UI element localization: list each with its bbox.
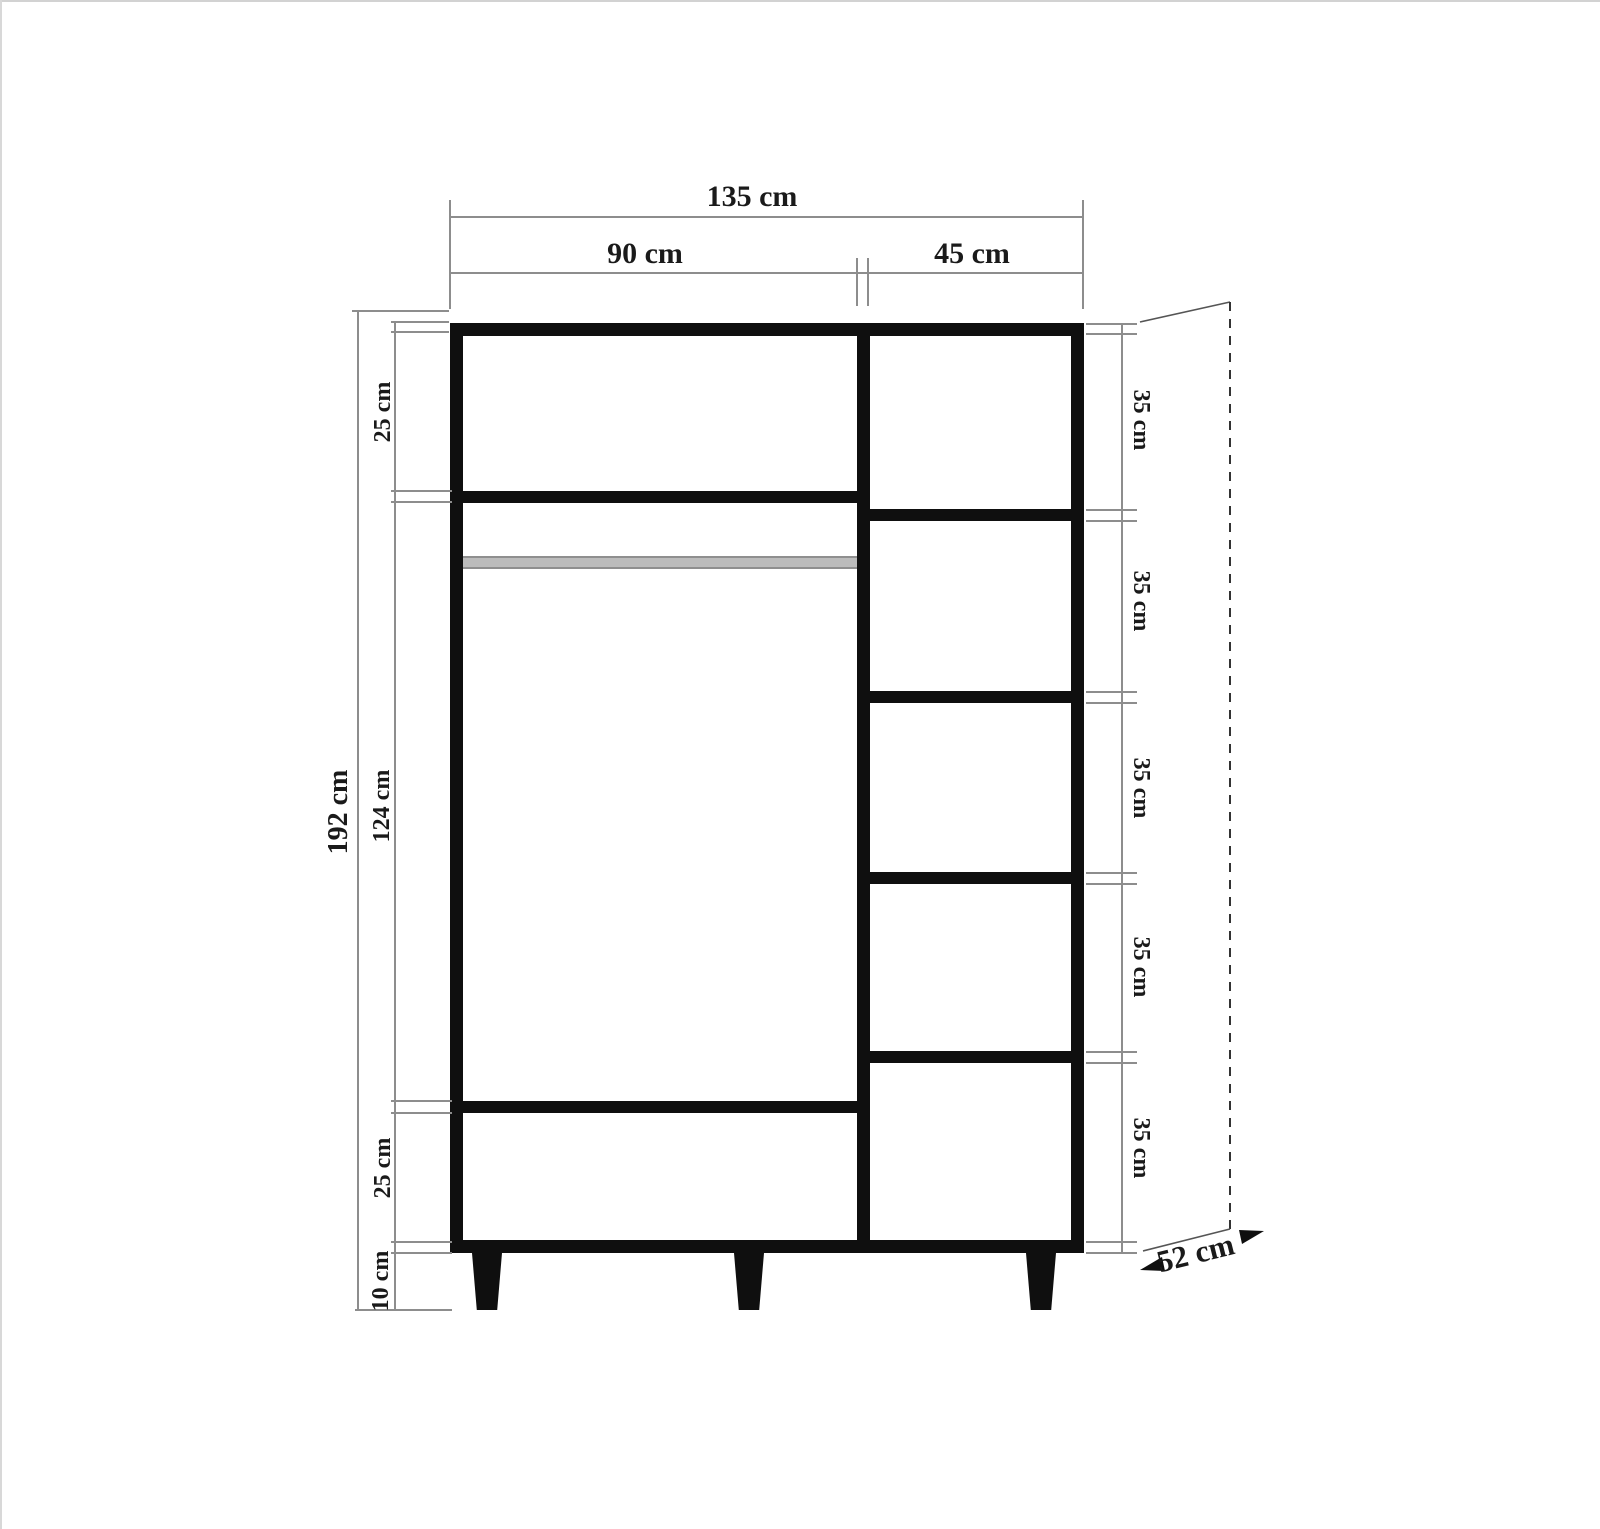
dim-tick <box>391 490 452 492</box>
label-leg-height: 10 cm <box>369 1251 393 1312</box>
depth-arrow-right-icon <box>1239 1230 1264 1244</box>
dim-tick <box>391 501 452 503</box>
cabinet-outer-frame <box>450 323 1084 1253</box>
left-bottom-shelf-board <box>461 1101 859 1113</box>
depth-projection: 52 cm <box>1080 280 1300 1300</box>
dim-tick <box>391 1112 452 1114</box>
dim-tick <box>449 200 451 309</box>
label-depth: 52 cm <box>1153 1226 1238 1279</box>
dim-line-total-width <box>449 216 1083 218</box>
label-left-middle-section: 124 cm <box>370 770 394 843</box>
dim-tick <box>391 331 449 333</box>
label-total-height: 192 cm <box>325 770 353 855</box>
dim-tick <box>867 258 869 306</box>
dim-tick <box>391 1252 452 1254</box>
label-left-top-section: 25 cm <box>371 382 395 443</box>
label-left-width: 90 cm <box>607 239 683 269</box>
dim-line-total-height <box>357 310 359 1310</box>
cabinet-leg-center <box>734 1253 764 1310</box>
label-right-width: 45 cm <box>934 239 1010 269</box>
dim-tick <box>391 1241 452 1243</box>
right-shelf-board-1 <box>868 509 1072 521</box>
right-shelf-board-2 <box>868 691 1072 703</box>
dim-tick <box>391 1100 452 1102</box>
screenshot-edge-artifact-left <box>0 0 2 1529</box>
wardrobe-dimension-diagram: 135 cm 90 cm 45 cm 192 cm 25 cm 124 cm 2… <box>0 0 1600 1529</box>
right-shelf-board-3 <box>868 872 1072 884</box>
hanging-rod <box>463 556 857 569</box>
cabinet-leg-right <box>1026 1253 1056 1310</box>
label-total-width: 135 cm <box>707 182 798 212</box>
dim-tick <box>856 258 858 306</box>
cabinet-leg-left <box>472 1253 502 1310</box>
screenshot-edge-artifact-top <box>0 0 1600 2</box>
depth-top-edge-line <box>1140 302 1230 322</box>
left-top-shelf-board <box>461 491 859 503</box>
right-shelf-board-4 <box>868 1051 1072 1063</box>
dim-tick <box>391 321 449 323</box>
dim-tick <box>352 310 449 312</box>
dim-line-split-width <box>449 272 1083 274</box>
label-left-bottom-section: 25 cm <box>371 1138 395 1199</box>
